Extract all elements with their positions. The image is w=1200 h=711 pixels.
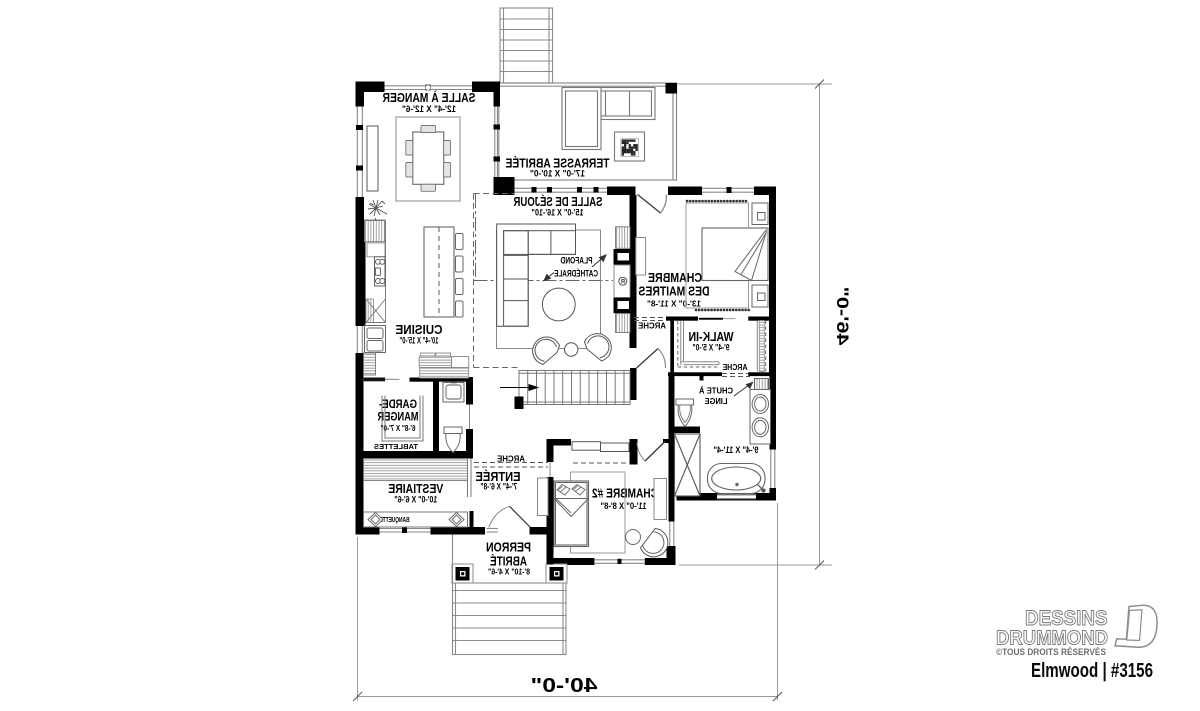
svg-text:10'-4" X 15'-0": 10'-4" X 15'-0": [400, 336, 439, 346]
svg-text:SALLE À MANGER: SALLE À MANGER: [382, 90, 475, 105]
svg-text:9'-4" X 5'-0": 9'-4" X 5'-0": [693, 343, 730, 353]
svg-text:ARCHE: ARCHE: [637, 322, 666, 331]
svg-text:TABLETTES: TABLETTES: [374, 442, 418, 451]
svg-text:8'-10" X 4'-6": 8'-10" X 4'-6": [488, 567, 530, 577]
svg-text:Elmwood | #3156: Elmwood | #3156: [1031, 660, 1153, 682]
svg-text:7'-4" X 6'-8": 7'-4" X 6'-8": [480, 481, 517, 491]
svg-text:BANQUETTE: BANQUETTE: [380, 515, 410, 524]
svg-text:15'-0" X 16'-10": 15'-0" X 16'-10": [532, 208, 584, 218]
svg-text:17'-0" X 10'-0": 17'-0" X 10'-0": [530, 169, 585, 179]
svg-text:LINGE: LINGE: [704, 397, 728, 406]
svg-text:DES MAITRES: DES MAITRES: [638, 284, 709, 299]
svg-text:ARCHE: ARCHE: [722, 363, 748, 372]
svg-text:MANGER: MANGER: [377, 410, 418, 424]
svg-text:PLAFOND: PLAFOND: [560, 256, 592, 266]
svg-text:11'-0" X 8'-8": 11'-0" X 8'-8": [601, 501, 647, 511]
svg-text:CATHÉDRALE: CATHÉDRALE: [554, 269, 598, 279]
svg-text:40'-0": 40'-0": [531, 675, 598, 697]
svg-text:6'-8" X 7'-0": 6'-8" X 7'-0": [381, 423, 416, 433]
svg-text:©TOUS DROITS RÉSERVÉS: ©TOUS DROITS RÉSERVÉS: [996, 647, 1106, 657]
svg-text:ARCHE: ARCHE: [496, 455, 525, 464]
svg-text:9'-4" X 11'-4": 9'-4" X 11'-4": [714, 445, 759, 455]
svg-text:CHUTE À: CHUTE À: [699, 387, 733, 396]
svg-text:R: R: [620, 279, 625, 285]
svg-text:10'-0" X 6'-6": 10'-0" X 6'-6": [394, 495, 437, 505]
svg-text:13'-0" X 11'-8": 13'-0" X 11'-8": [647, 299, 701, 309]
svg-text:46'-0": 46'-0": [833, 287, 852, 346]
svg-text:PERRON: PERRON: [486, 540, 531, 555]
svg-text:12'-4" X 12'-6": 12'-4" X 12'-6": [402, 104, 456, 114]
